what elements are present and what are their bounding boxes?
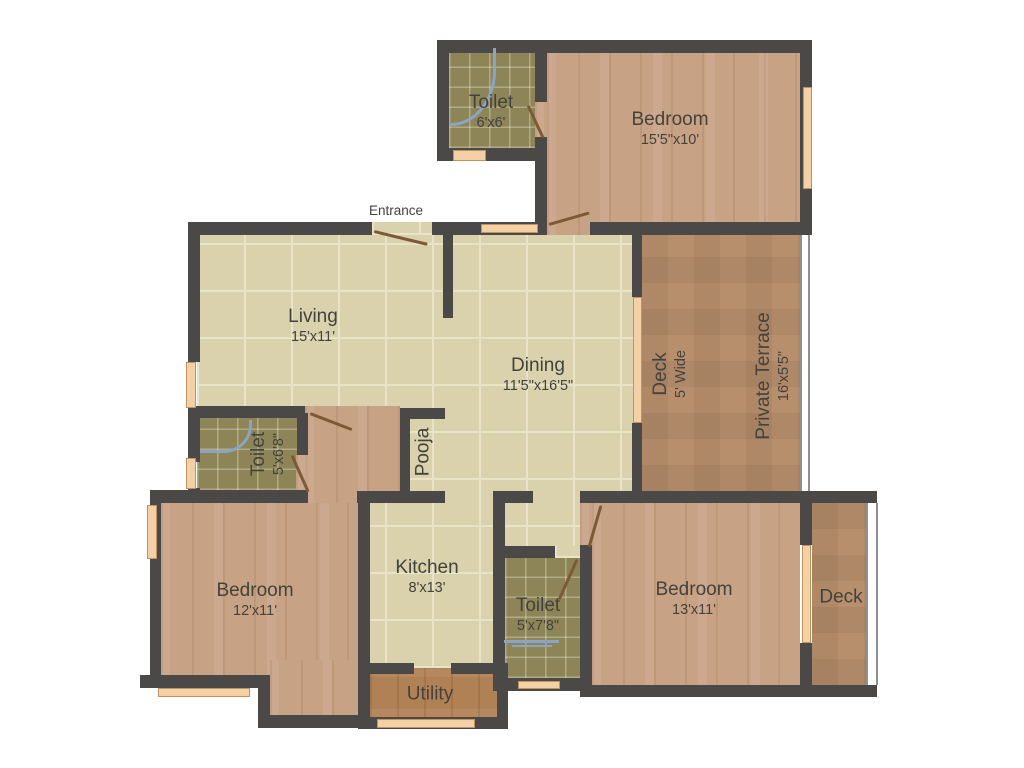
- wall: [800, 503, 812, 545]
- wall: [297, 413, 308, 455]
- room-dims: 12'x11': [216, 603, 293, 620]
- wall: [800, 643, 812, 687]
- room-label-kitchen: Kitchen 8'x13': [395, 557, 458, 597]
- room-name: Toilet: [516, 595, 560, 618]
- room-name: Pooja: [413, 428, 436, 477]
- room-dims: 5' Wide: [673, 350, 690, 398]
- floor-hallway: [305, 406, 400, 503]
- window: [481, 224, 538, 233]
- wall: [590, 222, 812, 235]
- room-dims: 6'x6': [469, 115, 513, 132]
- room-label-utility: Utility: [407, 684, 453, 707]
- window: [158, 688, 250, 697]
- room-label-living: Living 15'x11': [288, 306, 338, 346]
- window: [186, 362, 196, 408]
- floor-plan: Toilet 6'x6' Bedroom 15'5"x10' Entrance …: [0, 0, 1024, 768]
- wall: [400, 408, 410, 503]
- room-name: Toilet: [469, 92, 513, 115]
- room-dims: 16'x5'5": [776, 312, 793, 439]
- room-name: Private Terrace: [753, 312, 776, 439]
- room-dims: 15'5"x10': [631, 132, 708, 149]
- floor-bedroom-left-nook: [270, 660, 358, 715]
- wall: [493, 491, 533, 503]
- room-dims: 8'x13': [395, 580, 458, 597]
- wall: [358, 491, 370, 727]
- room-name: Bedroom: [216, 580, 293, 603]
- room-label-bedroom-right: Bedroom 13'x11': [655, 579, 732, 619]
- wall: [632, 423, 642, 491]
- room-dims: 5'x7'8": [516, 618, 560, 635]
- wall: [188, 222, 200, 362]
- wall: [437, 40, 449, 161]
- room-name: Deck: [650, 350, 673, 398]
- room-label-private-terrace: Private Terrace 16'x5'5": [753, 312, 793, 439]
- sliding-door: [633, 297, 642, 423]
- window: [186, 458, 196, 489]
- wall: [535, 40, 547, 102]
- wall: [493, 546, 555, 558]
- wall: [188, 406, 305, 418]
- shelf-fixture: [504, 640, 559, 643]
- room-name: Dining: [503, 355, 573, 378]
- wall: [580, 545, 592, 691]
- room-label-bedroom-left: Bedroom 12'x11': [216, 580, 293, 620]
- room-dims: 5'x6'8": [271, 432, 288, 476]
- window: [803, 87, 812, 189]
- wall: [580, 491, 877, 503]
- wall: [258, 715, 370, 728]
- wall: [140, 675, 270, 688]
- room-label-deck-bottom: Deck: [819, 587, 862, 610]
- terrace-railing: [800, 235, 810, 491]
- room-dims: 11'5"x16'5": [503, 378, 573, 395]
- room-name: Toilet: [248, 432, 271, 476]
- deck-railing: [866, 503, 878, 685]
- room-label-toilet-bottom: Toilet 5'x7'8": [516, 595, 560, 635]
- window: [453, 150, 486, 161]
- wall: [535, 137, 547, 228]
- wall: [443, 222, 453, 318]
- room-name: Utility: [407, 684, 453, 707]
- room-name: Living: [288, 306, 338, 329]
- door-opening: [555, 546, 580, 558]
- room-dims: 15'x11': [288, 329, 338, 346]
- wall: [580, 685, 877, 697]
- entrance-text: Entrance: [369, 203, 423, 219]
- window: [518, 681, 560, 689]
- entrance-label: Entrance: [369, 203, 423, 219]
- wall: [358, 663, 414, 674]
- room-label-toilet-mid: Toilet 5'x6'8": [248, 432, 288, 476]
- sliding-door: [802, 545, 811, 643]
- window: [147, 505, 157, 559]
- wall: [493, 491, 505, 691]
- room-label-toilet-top: Toilet 6'x6': [469, 92, 513, 132]
- room-name: Bedroom: [655, 579, 732, 602]
- wall: [400, 408, 445, 419]
- room-label-bedroom-top: Bedroom 15'5"x10': [631, 109, 708, 149]
- room-name: Kitchen: [395, 557, 458, 580]
- room-name: Bedroom: [631, 109, 708, 132]
- wall: [632, 222, 642, 297]
- room-label-deck-side: Deck 5' Wide: [650, 350, 690, 398]
- window: [377, 719, 475, 728]
- room-label-pooja: Pooja: [413, 428, 436, 477]
- shelf-fixture: [512, 645, 552, 647]
- wall: [188, 222, 372, 235]
- room-dims: 13'x11': [655, 602, 732, 619]
- wall: [150, 490, 308, 503]
- wall: [357, 491, 445, 503]
- room-name: Deck: [819, 587, 862, 610]
- room-label-dining: Dining 11'5"x16'5": [503, 355, 573, 395]
